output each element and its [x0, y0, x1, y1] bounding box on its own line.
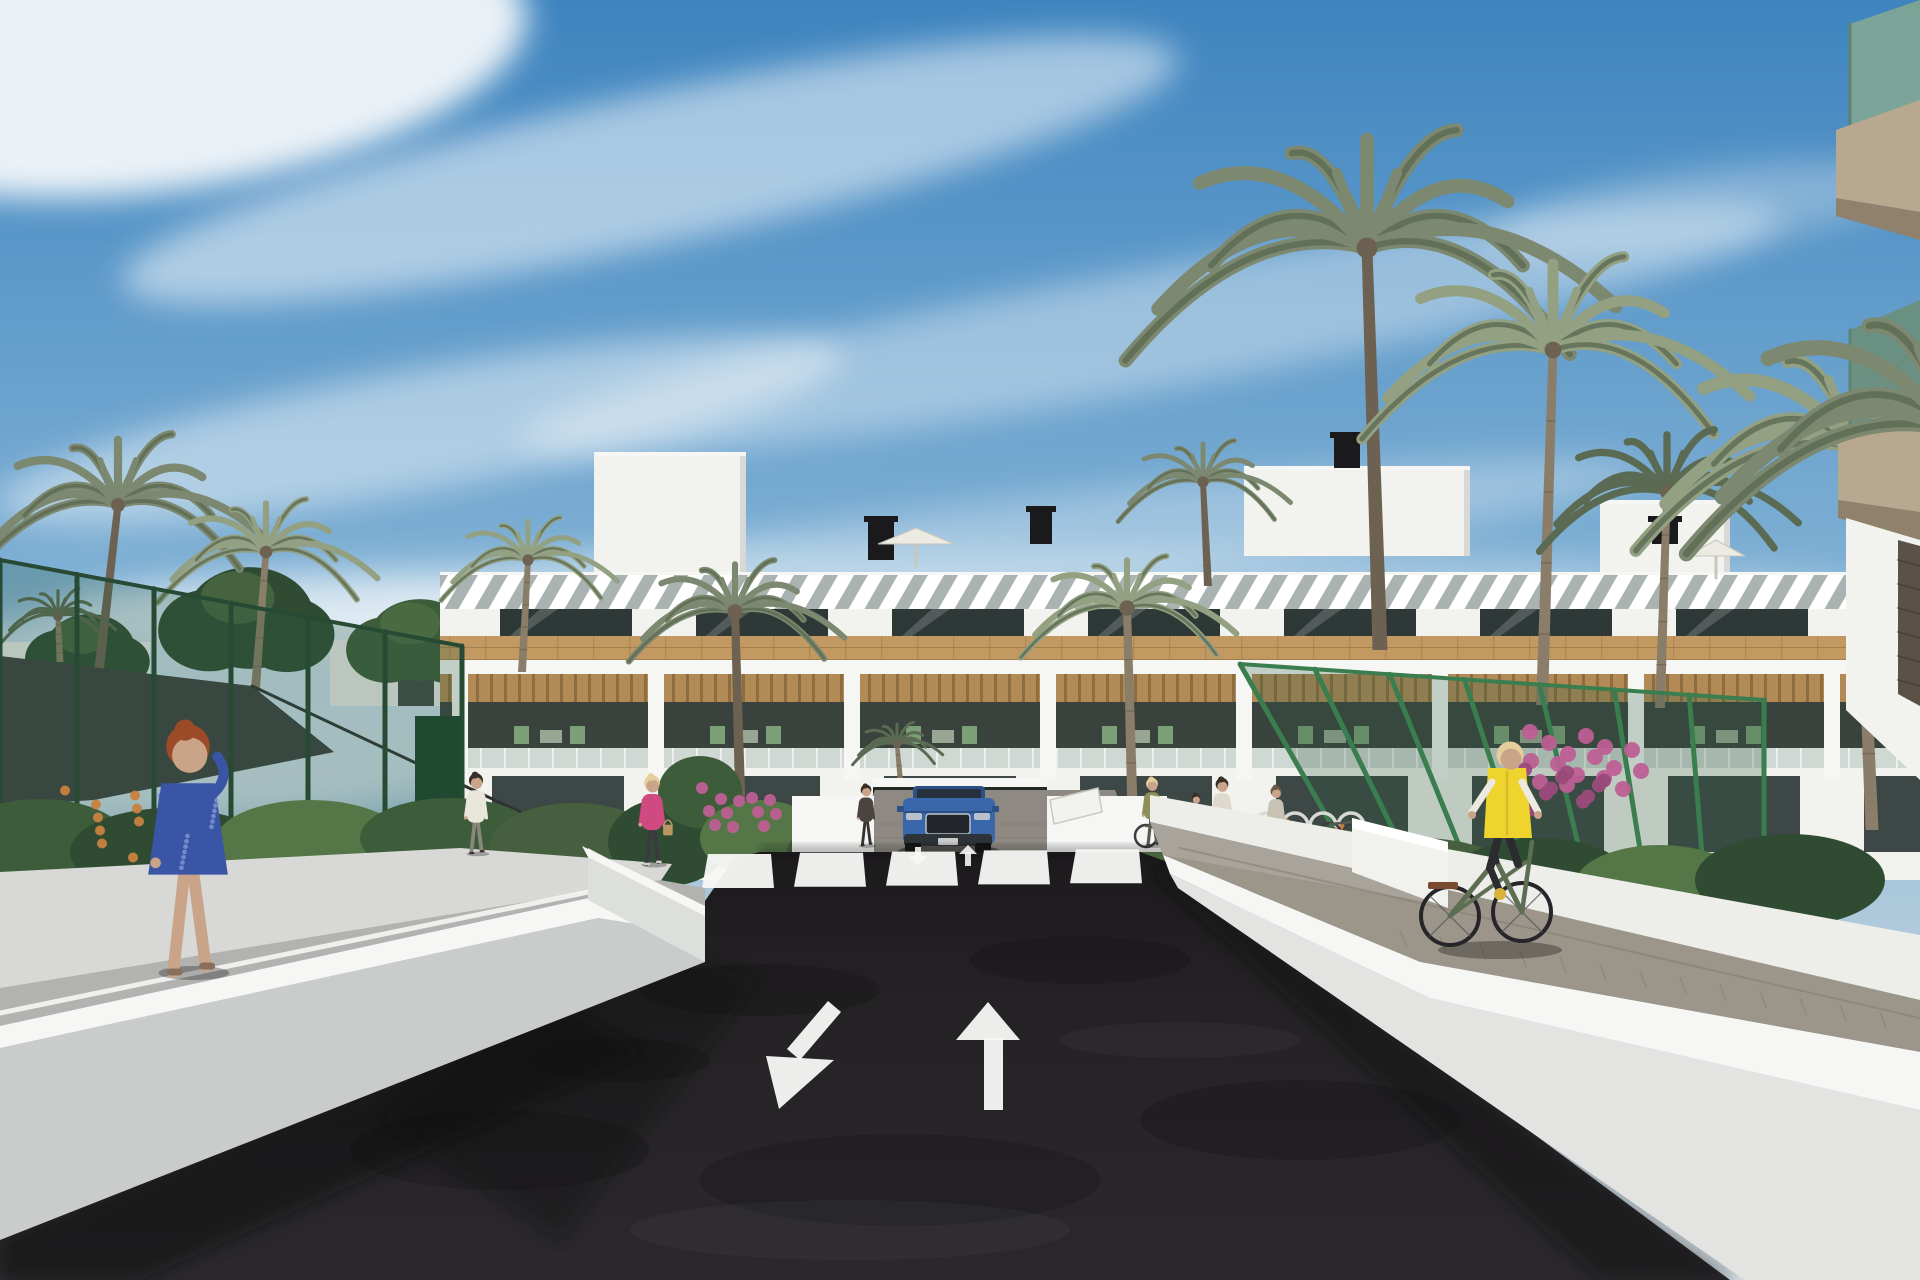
flower-cluster-dot: [1522, 724, 1538, 740]
flower-cluster-dot: [1560, 766, 1574, 780]
roof-vent-chimney: [868, 516, 894, 560]
person-head: [471, 777, 482, 788]
cyclist-head: [1501, 749, 1522, 770]
palm-crown-core: [727, 604, 742, 619]
car-headlight-left: [906, 813, 922, 820]
flower-cluster-dot: [727, 821, 739, 833]
person-head: [1193, 796, 1200, 803]
balcony-chair: [766, 726, 781, 744]
palm-crown-core: [1545, 342, 1562, 359]
flower-cluster-dot: [1541, 735, 1557, 751]
penthouse-top-edge: [594, 452, 746, 456]
penthouse-shade-edge: [740, 452, 746, 572]
flower-cluster-dot: [1597, 774, 1611, 788]
flower-cluster-dot: [752, 806, 764, 818]
flower-cluster-dot: [1544, 782, 1558, 796]
render-canvas: [0, 0, 1920, 1280]
person-hair-bun: [174, 719, 195, 740]
flower-cluster-dot: [97, 839, 107, 849]
dress-pattern-dot: [179, 865, 184, 870]
balcony-table: [932, 730, 954, 743]
cyclist-hand: [1534, 811, 1542, 819]
pergola-pier: [648, 660, 664, 780]
dress-pattern-dot: [213, 803, 218, 808]
person-head: [1148, 781, 1158, 791]
car-grille: [926, 814, 970, 834]
penthouse-volume: [594, 452, 746, 572]
person-hair-bun: [1273, 785, 1278, 790]
cyclist-hand: [1468, 811, 1476, 819]
dress-pattern-dot: [182, 850, 187, 855]
dress-pattern-dot: [211, 814, 216, 819]
car-mirror-right: [992, 806, 999, 812]
pergola-pier: [1824, 660, 1840, 780]
balcony-chair: [710, 726, 725, 744]
penthouse-shade-edge: [1464, 466, 1470, 556]
car-license-plate: [938, 838, 958, 845]
flower-cluster-dot: [1615, 781, 1631, 797]
architectural-render-image: Architectural render: residential comple…: [0, 0, 1920, 1280]
flower-cluster-dot: [1560, 746, 1576, 762]
person-hair-bun: [647, 773, 655, 781]
flower-cluster-dot: [1578, 728, 1594, 744]
dress-pattern-dot: [210, 819, 215, 824]
penthouse-volume: [1244, 466, 1470, 556]
roof-vent-cap: [864, 516, 898, 522]
balcony-chair: [962, 726, 977, 744]
person-head: [1272, 789, 1281, 798]
dress-pattern-dot: [184, 839, 189, 844]
cyclist-shoe: [1494, 888, 1506, 900]
roof-vent-cap: [1026, 506, 1056, 512]
person-head: [646, 780, 659, 793]
flower-cluster-dot: [703, 805, 715, 817]
person-head: [862, 788, 871, 797]
pergola-pier: [1040, 660, 1056, 780]
dress-pattern-dot: [185, 834, 190, 839]
flower-cluster-dot: [696, 782, 708, 794]
crosswalk-stripe: [702, 854, 774, 888]
flower-cluster-dot: [733, 795, 745, 807]
palm-crown-core: [893, 740, 901, 748]
flower-cluster-dot: [715, 793, 727, 805]
person-head: [172, 737, 207, 772]
person-hand: [150, 858, 161, 869]
flower-cluster-dot: [60, 786, 70, 796]
person-hair-bun: [863, 783, 868, 788]
balcony-table: [540, 730, 562, 743]
pergola-pier: [844, 660, 860, 780]
flower-cluster-dot: [1624, 742, 1640, 758]
flower-cluster-dot: [1597, 739, 1613, 755]
balcony-chair: [1102, 726, 1117, 744]
person-hand: [464, 816, 467, 819]
person-hair-bun: [1218, 776, 1224, 782]
flower-cluster-dot: [1606, 760, 1622, 776]
person-hair-bun: [1148, 777, 1154, 783]
person-head: [1217, 782, 1227, 792]
palm-crown-core: [1119, 600, 1134, 615]
palm-crown-core: [1357, 238, 1378, 259]
car-mirror-left: [897, 806, 904, 812]
palm-crown-core: [1197, 476, 1208, 487]
flower-cluster-dot: [132, 804, 142, 814]
crosswalk-stripe: [1070, 849, 1142, 883]
flower-cluster-dot: [95, 826, 105, 836]
flower-cluster-dot: [746, 792, 758, 804]
person-hair-bun: [472, 772, 479, 779]
dress-pattern-dot: [212, 809, 217, 814]
flower-cluster-dot: [770, 808, 782, 820]
dress-pattern-dot: [181, 855, 186, 860]
dress-pattern-dot: [180, 860, 185, 865]
flower-cluster-dot: [93, 813, 103, 823]
flower-cluster-dot: [709, 819, 721, 831]
asphalt-blotch: [970, 936, 1190, 984]
small-arrow-up-shaft: [965, 852, 971, 866]
palm-crown-core: [111, 498, 125, 512]
flower-cluster-dot: [134, 817, 144, 827]
flower-cluster-dot: [91, 800, 101, 810]
asphalt-sheen: [630, 1200, 1070, 1260]
wood-cladding-band: [440, 636, 1920, 660]
car-headlight-right: [974, 813, 990, 820]
flower-cluster-dot: [764, 794, 776, 806]
palm-crown-core: [260, 546, 273, 559]
flower-cluster-dot: [130, 791, 140, 801]
palm-crown-core: [522, 554, 533, 565]
road-arrow-up-shaft: [984, 1038, 1003, 1110]
flower-cluster-dot: [1633, 763, 1649, 779]
garage-ceiling-edge: [873, 778, 1047, 787]
crosswalk-stripe: [794, 853, 866, 887]
balcony-chair: [1158, 726, 1173, 744]
flower-cluster-dot: [128, 853, 138, 863]
balcony-chair: [514, 726, 529, 744]
person-hand: [1142, 814, 1145, 817]
crosswalk-stripe: [978, 850, 1050, 884]
rear-rack: [1428, 882, 1458, 889]
person-hand: [857, 817, 860, 820]
dress-pattern-dot: [209, 824, 214, 829]
person-hair-bun: [1193, 793, 1197, 797]
asphalt-sheen: [1060, 1022, 1300, 1058]
flower-cluster-dot: [758, 820, 770, 832]
balcony-chair: [570, 726, 585, 744]
person-handbag: [663, 825, 673, 836]
flower-cluster-dot: [721, 807, 733, 819]
person-hand: [638, 823, 642, 827]
dress-pattern-dot: [183, 844, 188, 849]
flower-cluster-dot: [1581, 790, 1595, 804]
